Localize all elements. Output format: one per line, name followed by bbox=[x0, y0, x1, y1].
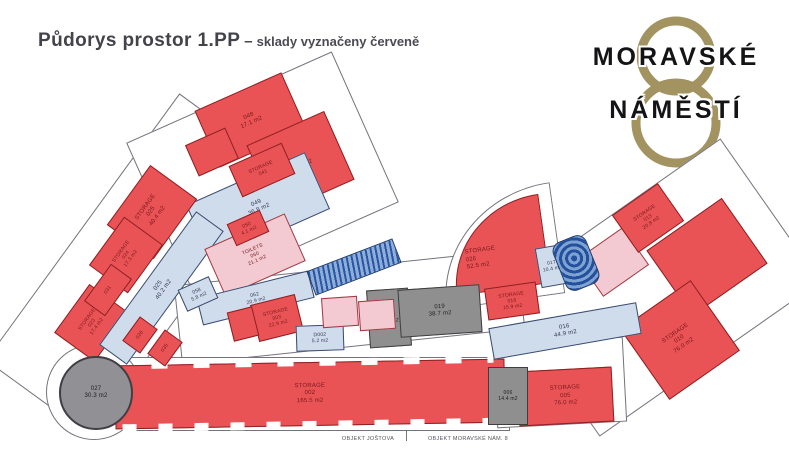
room-label: D0025.2 m2 bbox=[312, 331, 329, 344]
room-label: STORAGE002165.5 m2 bbox=[294, 382, 325, 405]
room-tp1 bbox=[321, 296, 359, 328]
room-label: 035 bbox=[160, 343, 170, 354]
room-label: 01938.7 m2 bbox=[428, 303, 452, 320]
room-label: 026 bbox=[135, 330, 145, 341]
room-label: 04817.1 m2 bbox=[237, 108, 264, 131]
title-text: Půdorys prostor 1.PP bbox=[38, 30, 240, 51]
room-006: 00614.4 m2 bbox=[488, 367, 528, 425]
title-dash: – bbox=[244, 33, 252, 50]
moravske-namesti-logo: MORAVSKÉ NÁMĚSTÍ bbox=[577, 6, 775, 176]
room-label: STORAGE01320.8 m2 bbox=[632, 203, 664, 233]
room-label: STORAGE01076.0 m2 bbox=[661, 322, 699, 358]
room-label: 02730.3 m2 bbox=[84, 386, 107, 401]
room-label: STORAGE00576.0 m2 bbox=[550, 384, 582, 408]
logo-line-2: NÁMĚSTÍ bbox=[577, 96, 775, 125]
page-title: Půdorys prostor 1.PP–sklady vyznačeny če… bbox=[38, 30, 419, 52]
room-D002: D0025.2 m2 bbox=[296, 324, 345, 352]
room-label: STORAGE02652.5 m2 bbox=[464, 246, 497, 273]
room-label: 01644.9 m2 bbox=[552, 322, 577, 341]
room-label: STORAGE02540.4 m2 bbox=[134, 193, 170, 231]
room-019: 01938.7 m2 bbox=[397, 284, 482, 338]
title-subtitle: sklady vyznačeny červeně bbox=[257, 34, 420, 49]
logo-line-1: MORAVSKÉ bbox=[577, 43, 775, 72]
room-label: 02540.2 m2 bbox=[149, 274, 175, 302]
room-002: STORAGE002165.5 m2 bbox=[114, 359, 505, 430]
room-label: STORAGE00322.9 m2 bbox=[262, 306, 292, 330]
room-label: 00614.4 m2 bbox=[498, 390, 517, 403]
building-caption-moravske-nam: OBJEKT MORAVSKÉ NÁM. 8 bbox=[408, 436, 528, 442]
figure-eight-icon bbox=[577, 6, 775, 176]
building-caption-jostova: OBJEKT JOŠTOVA bbox=[322, 436, 414, 442]
room-label: 0585.8 m2 bbox=[188, 285, 208, 303]
room-label: 0504.1 m2 bbox=[238, 219, 258, 237]
floor-plan-page: Půdorys prostor 1.PP–sklady vyznačeny če… bbox=[0, 0, 789, 468]
room-label: TOILETS06021.1 m2 bbox=[241, 242, 269, 268]
room-005: STORAGE00576.0 m2 bbox=[517, 367, 615, 427]
room-tp2 bbox=[358, 299, 396, 331]
room-label: 031 bbox=[103, 285, 113, 296]
room-027: 02730.3 m2 bbox=[59, 356, 133, 430]
room-label: STORAGE041 bbox=[248, 159, 277, 181]
room-label: STORAGE01615.9 m2 bbox=[498, 290, 526, 312]
